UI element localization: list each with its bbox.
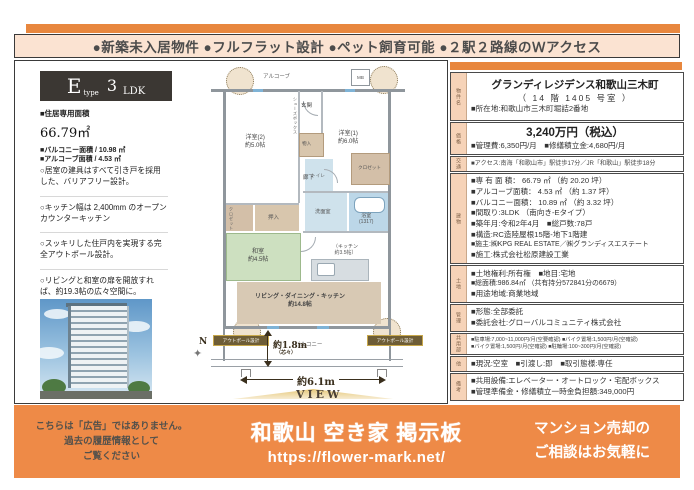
tatami-room-size: 約4.5帖	[248, 257, 268, 265]
east-room-size: 約6.0帖	[338, 139, 358, 147]
section-property-name: 物件名 グランディレジデンス和歌山三木町 （ 14 階 1405 号室 ） ■所…	[450, 72, 684, 121]
banner-disclaimer: こちらは「広告」ではありません。 過去の履歴情報として ご覧ください	[14, 419, 209, 465]
depth-note: （芯々）	[276, 349, 296, 356]
storage-label: 物入	[302, 141, 311, 147]
flyer-page: ●新築未入居物件 ●フルフラット設計 ●ペット飼育可能 ●２駅２路線のＷアクセス…	[0, 0, 694, 490]
arrow-head-down	[264, 361, 272, 367]
area-number: 66.79	[40, 126, 77, 141]
section-building: 建物 ■専 有 面 積： 66.79 ㎡ （約 20.20 坪） ■アルコーブ面…	[450, 173, 684, 264]
window-mark	[253, 89, 263, 92]
selling-points: ○居室の建具はすべて引き戸を採用した、バリアフリー設計。 ○キッチン幅は 2,4…	[40, 165, 168, 305]
room-door-arc	[324, 169, 338, 183]
selling-point: ○リビングと和室の扉を開放すれば、約19.3帖の広々空間に。	[40, 269, 168, 298]
partition	[303, 231, 388, 233]
depth-arrow	[267, 333, 268, 363]
section-other: 他 ■現況:空室 ■引渡し:即 ■取引態様:専任	[450, 356, 684, 372]
exclusive-area-value: 66.79㎡	[40, 117, 90, 143]
section-label: 土地	[451, 266, 467, 302]
pitch-line: ご相談はお気軽に	[504, 442, 680, 465]
building-line: ■アルコーブ面積： 4.53 ㎡ （約 1.37 坪）	[471, 187, 679, 198]
building-line: ■バルコニー面積： 10.89 ㎡ （約 3.32 坪）	[471, 198, 679, 209]
parking-line: ■駐車場:7,000~11,000円/月(空要確認) ■バイク置場:1,500円…	[471, 337, 679, 344]
selling-point: ○居室の建具はすべて引き戸を採用した、バリアフリー設計。	[40, 165, 168, 188]
banner-pitch: マンション売却の ご相談はお気軽に	[504, 418, 680, 464]
land-line: ■総面積:986.84㎡ （共有持分572841分の6679）	[471, 279, 679, 289]
arrow-head-right	[379, 376, 386, 384]
closet-east-label: クロゼット	[358, 165, 381, 171]
feature-header: ●新築未入居物件 ●フルフラット設計 ●ペット飼育可能 ●２駅２路線のＷアクセス	[14, 34, 680, 58]
tatami-room-name: 和室	[248, 249, 268, 257]
bath-size: (1317)	[359, 219, 373, 225]
remarks-line: ■共用設備:エレベーター・オートロック・宅配ボックス	[471, 376, 679, 387]
arrow-head-up	[264, 330, 272, 336]
building-line: ■築年月:令和2年4月 ■総戸数:78戸	[471, 219, 679, 230]
west-room-name: 洋室(2)	[245, 135, 265, 143]
site-url[interactable]: https://flower-mark.net/	[209, 449, 504, 466]
bathtub-shape	[354, 197, 385, 213]
section-label: 価格	[451, 123, 467, 154]
parking-line: ■バイク置場:1,500円/月(空確認) ■駐輪場:100~300円/月(空確認…	[471, 344, 679, 351]
section-management: 管理 ■形態:全部委託 ■委託会社:グローバルコミュニティ株式会社	[450, 304, 684, 332]
kitchen-sink	[317, 263, 335, 276]
section-label: 物件名	[451, 73, 467, 120]
wall-top	[211, 89, 405, 92]
cloud-shape	[44, 309, 70, 319]
tatami-door-arc	[301, 237, 316, 252]
section-land: 土地 ■土地権利:所有権 ■地目:宅地 ■総面積:986.84㎡ （共有持分57…	[450, 265, 684, 303]
ldk-size: 約14.8帖	[255, 302, 345, 310]
unit-type-letter: E	[67, 76, 82, 96]
ldk-name: リビング・ダイニング・キッチン	[255, 294, 345, 302]
window-mark	[317, 326, 329, 329]
management-line: ■委託会社:グローバルコミュニティ株式会社	[471, 318, 679, 329]
property-name: グランディレジデンス和歌山三木町	[471, 78, 679, 93]
address-line: ■所在地:和歌山市三木町堀詰2番地	[471, 104, 679, 115]
access-line: ■アクセス:南海「和歌山市」駅徒歩17分／JR「和歌山」駅徒歩18分	[471, 160, 679, 169]
selling-point: ○スッキリした住戸内を実現する完全アウトポール設計。	[40, 232, 168, 261]
disclaimer-line: こちらは「広告」ではありません。	[14, 419, 209, 434]
window-mark	[345, 89, 355, 92]
building-line: ■施主:㈱KPG REAL ESTATE／㈱グランディスエステート	[471, 240, 679, 250]
kitchen-size: 約3.5帖）	[333, 250, 358, 256]
section-access: 交通 ■アクセス:南海「和歌山市」駅徒歩17分／JR「和歌山」駅徒歩18分	[450, 156, 684, 172]
wall-right	[388, 89, 391, 329]
unit-type-badge: E type 3 LDK	[40, 71, 172, 101]
management-line: ■形態:全部委託	[471, 307, 679, 318]
section-label: 共用部	[451, 334, 467, 354]
site-title: 和歌山 空き家 掲示板	[209, 417, 504, 447]
land-line: ■土地権利:所有権 ■地目:宅地	[471, 269, 679, 280]
building-tower	[68, 306, 129, 388]
fees-line: ■管理費:6,350円/月 ■修繕積立金:4,680円/月	[471, 141, 679, 152]
washroom-label: 洗面室	[315, 209, 331, 215]
building-photo	[40, 299, 152, 399]
top-accent-bar	[26, 24, 680, 33]
toilet-label: トイレ	[311, 173, 325, 179]
closet-west-label: クロゼット	[228, 207, 234, 230]
east-room-name: 洋室(1)	[338, 131, 358, 139]
arrow-head-left	[240, 376, 247, 384]
compass-north-label: N	[199, 337, 207, 347]
section-remarks: 備考 ■共用設備:エレベーター・オートロック・宅配ボックス ■管理準備金・修繕積…	[450, 373, 684, 401]
disclaimer-line: ご覧ください	[14, 449, 209, 464]
unit-panel: E type 3 LDK ■住居専用面積 66.79㎡ ■バルコニー面積 / 1…	[14, 60, 448, 404]
cloud-shape	[40, 347, 64, 359]
window-mark	[267, 326, 279, 329]
land-line: ■用途地域:商業地域	[471, 289, 679, 300]
east-room-label: 洋室(1) 約6.0帖	[338, 131, 358, 147]
pitch-line: マンション売却の	[504, 418, 680, 441]
room-number: （ 14 階 1405 号室 ）	[471, 93, 679, 105]
section-price: 価格 3,240万円（税込） ■管理費:6,350円/月 ■修繕積立金:4,68…	[450, 122, 684, 155]
outpole-badge-right: アウトポール設計	[367, 335, 423, 346]
view-label: VIEW	[296, 388, 342, 401]
section-common-facilities: 共用部 ■駐車場:7,000~11,000円/月(空要確認) ■バイク置場:1,…	[450, 333, 684, 355]
mb-box: MB	[351, 69, 370, 86]
width-value: 約6.1m	[293, 373, 339, 388]
shoebox-label: シューズボックス	[292, 97, 298, 135]
balcony-outer-line	[211, 359, 403, 360]
tatami-room-label: 和室 約4.5帖	[248, 249, 268, 265]
oshiire-label: 押入	[268, 215, 279, 222]
entrance-label: 玄関	[301, 103, 312, 110]
unit-type-number: 3	[107, 78, 117, 94]
outpole-badge-left: アウトポール設計	[213, 335, 269, 346]
building-line: ■専 有 面 積： 66.79 ㎡ （約 20.20 坪）	[471, 176, 679, 187]
unit-type-ldk: LDK	[123, 86, 145, 97]
building-line: ■施工:株式会社松原建設工業	[471, 250, 679, 261]
section-label: 交通	[451, 157, 467, 171]
alcove-area-line: ■アルコーブ面積 / 4.53 ㎡	[40, 154, 121, 164]
footer-banner: こちらは「広告」ではありません。 過去の履歴情報として ご覧ください 和歌山 空…	[14, 405, 680, 478]
west-room-size: 約5.0帖	[245, 143, 265, 151]
compass-icon: ✦	[193, 347, 202, 360]
building-line: ■間取り:3LDK （南向き-Eタイプ）	[471, 208, 679, 219]
ground-strip	[40, 391, 152, 399]
building-line: ■構造:RC造陸屋根15階-地下1階建	[471, 230, 679, 241]
ldk-label: リビング・ダイニング・キッチン 約14.8帖	[255, 294, 345, 310]
feature-header-text: ●新築未入居物件 ●フルフラット設計 ●ペット飼育可能 ●２駅２路線のＷアクセス	[93, 36, 602, 56]
section-label: 備考	[451, 374, 467, 400]
wall-bottom	[223, 326, 391, 329]
disclaimer-line: 過去の履歴情報として	[14, 434, 209, 449]
remarks-line: ■管理準備金・修繕積立一時金負担額:349,000円	[471, 387, 679, 398]
price-value: 3,240万円（税込）	[471, 125, 679, 141]
section-label: 他	[451, 357, 467, 371]
area-unit: ㎡	[77, 126, 90, 141]
details-accent-bar	[450, 62, 682, 70]
bath-label: 浴室 (1317)	[359, 213, 373, 225]
west-room-label: 洋室(2) 約5.0帖	[245, 135, 265, 151]
section-label: 建物	[451, 174, 467, 263]
kitchen-label: （キッチン 約3.5帖）	[333, 244, 358, 256]
section-label: 管理	[451, 305, 467, 331]
banner-brand: 和歌山 空き家 掲示板 https://flower-mark.net/	[209, 417, 504, 466]
alcove-label: アルコーブ	[263, 74, 290, 81]
balcony-outer-line	[211, 366, 403, 367]
selling-point: ○キッチン幅は 2,400mm のオープンカウンターキッチン	[40, 196, 168, 225]
status-line: ■現況:空室 ■引渡し:即 ■取引態様:専任	[471, 359, 679, 370]
unit-type-word: type	[83, 89, 98, 97]
